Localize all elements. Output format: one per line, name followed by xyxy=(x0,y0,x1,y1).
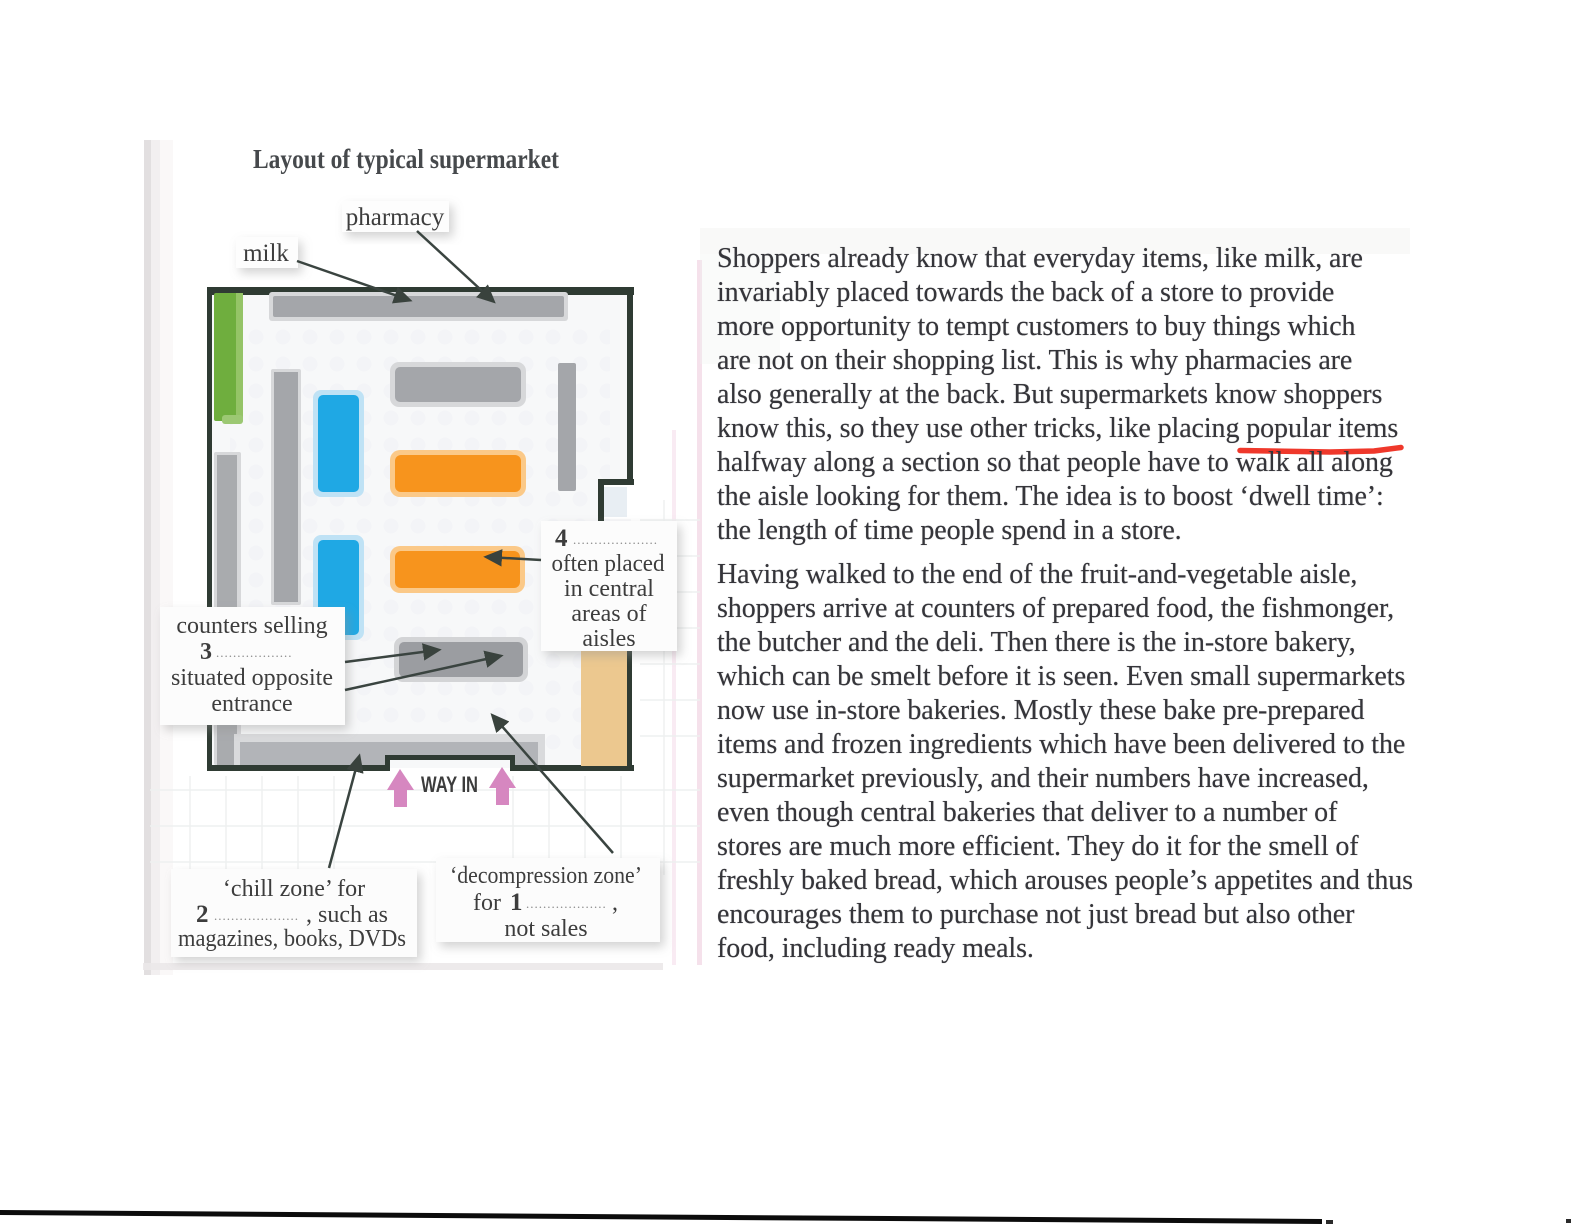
svg-text:situated opposite: situated opposite xyxy=(171,665,333,691)
svg-text:2: 2 xyxy=(196,901,209,928)
svg-text:for: for xyxy=(473,890,501,916)
svg-text:1: 1 xyxy=(510,889,523,916)
svg-text:entrance: entrance xyxy=(211,691,292,717)
svg-text:....................: .................... xyxy=(573,532,658,547)
svg-text:counters selling: counters selling xyxy=(176,613,327,639)
svg-text:areas of: areas of xyxy=(571,601,646,627)
svg-text:3: 3 xyxy=(200,639,212,665)
svg-text:WAY IN: WAY IN xyxy=(421,772,478,797)
svg-text:4: 4 xyxy=(555,525,568,552)
svg-text:milk: milk xyxy=(243,240,289,267)
svg-text:aisles: aisles xyxy=(582,626,635,652)
svg-text:, such as: , such as xyxy=(306,902,388,928)
svg-text:often placed: often placed xyxy=(552,551,665,577)
svg-text:Layout of typical supermarket: Layout of typical supermarket xyxy=(253,144,559,174)
svg-text:‘decompression zone’: ‘decompression zone’ xyxy=(450,863,642,889)
svg-text:‘chill zone’ for: ‘chill zone’ for xyxy=(223,876,365,902)
svg-text:magazines, books, DVDs: magazines, books, DVDs xyxy=(178,926,406,952)
svg-text:..................: .................. xyxy=(216,645,293,660)
svg-text:,: , xyxy=(612,890,618,916)
svg-text:in central: in central xyxy=(564,576,654,602)
svg-text:....................: .................... xyxy=(214,908,299,923)
svg-text:pharmacy: pharmacy xyxy=(346,204,445,231)
svg-text:...................: ................... xyxy=(526,896,607,911)
svg-text:not sales: not sales xyxy=(504,916,587,942)
